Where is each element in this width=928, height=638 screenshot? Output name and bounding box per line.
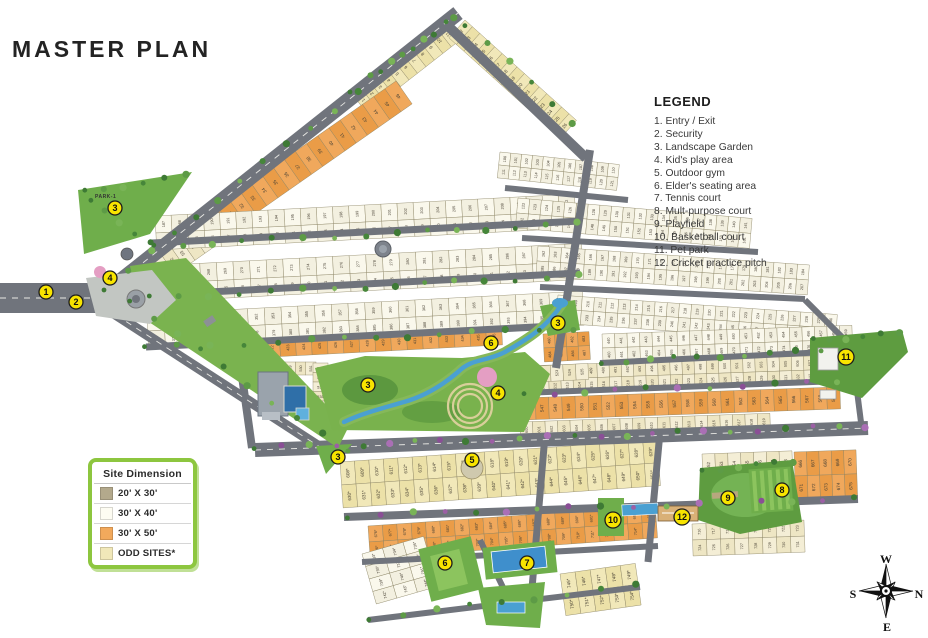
svg-text:379: 379 xyxy=(272,330,276,337)
svg-text:389: 389 xyxy=(440,321,444,328)
svg-text:425: 425 xyxy=(318,343,322,350)
marker-9: 9 xyxy=(721,491,735,505)
svg-text:562: 562 xyxy=(738,397,743,405)
svg-text:499: 499 xyxy=(711,363,715,369)
svg-text:517: 517 xyxy=(614,381,618,387)
svg-text:194: 194 xyxy=(647,273,651,280)
svg-text:393: 393 xyxy=(507,317,511,324)
svg-text:380: 380 xyxy=(289,329,293,336)
legend-item: 11. Pet park xyxy=(654,245,834,258)
svg-text:164: 164 xyxy=(565,252,569,259)
svg-text:442: 442 xyxy=(632,337,636,343)
svg-text:116: 116 xyxy=(556,174,561,180)
svg-text:524: 524 xyxy=(568,369,572,376)
svg-text:621*: 621* xyxy=(532,455,538,465)
svg-text:469: 469 xyxy=(720,348,724,354)
svg-text:274: 274 xyxy=(306,263,310,270)
svg-text:606: 606 xyxy=(600,424,604,430)
svg-text:689*: 689* xyxy=(560,516,565,525)
svg-text:211: 211 xyxy=(598,302,602,308)
svg-text:724: 724 xyxy=(698,544,702,550)
svg-text:714*: 714* xyxy=(633,527,638,536)
svg-text:208: 208 xyxy=(500,203,504,210)
svg-text:169: 169 xyxy=(624,256,628,263)
svg-text:647*: 647* xyxy=(592,474,598,484)
svg-text:622*: 622* xyxy=(547,454,553,464)
svg-text:489: 489 xyxy=(589,367,593,373)
svg-text:472: 472 xyxy=(757,346,761,352)
svg-text:604: 604 xyxy=(575,425,579,431)
svg-text:496: 496 xyxy=(674,364,678,370)
marker-6: 6 xyxy=(438,556,452,570)
svg-text:565: 565 xyxy=(778,396,783,404)
svg-text:680*: 680* xyxy=(431,525,436,534)
svg-text:641*: 641* xyxy=(505,480,511,490)
svg-text:215: 215 xyxy=(647,305,651,312)
svg-text:520: 520 xyxy=(650,379,654,385)
svg-text:206: 206 xyxy=(468,205,472,212)
svg-text:495: 495 xyxy=(662,365,666,371)
svg-text:148: 148 xyxy=(590,224,595,231)
svg-text:120: 120 xyxy=(599,179,604,186)
svg-text:498: 498 xyxy=(699,364,703,370)
svg-text:619*: 619* xyxy=(504,457,510,467)
svg-text:152: 152 xyxy=(637,228,642,235)
master-plan-page: 1234567891011121314151617181920212223242… xyxy=(0,0,928,638)
marker-11: 11 xyxy=(838,349,854,365)
compass-rose: W N E S xyxy=(845,548,927,634)
svg-text:673: 673 xyxy=(823,483,828,491)
legend-item: 12. Cricket practice pitch xyxy=(654,258,834,271)
road xyxy=(448,26,586,158)
svg-text:383: 383 xyxy=(339,326,343,333)
svg-text:706*: 706* xyxy=(519,535,524,544)
svg-text:171: 171 xyxy=(648,258,652,265)
compass-right-label: N xyxy=(915,587,924,601)
svg-text:220: 220 xyxy=(707,309,711,316)
svg-text:193: 193 xyxy=(258,216,262,223)
svg-text:704*: 704* xyxy=(490,537,495,546)
svg-text:460: 460 xyxy=(607,352,611,358)
svg-text:513: 513 xyxy=(565,382,569,388)
svg-text:608: 608 xyxy=(625,423,629,429)
svg-text:691*: 691* xyxy=(589,514,594,523)
svg-text:101: 101 xyxy=(514,157,519,164)
svg-text:486: 486 xyxy=(571,350,575,357)
svg-text:638*: 638* xyxy=(462,483,468,493)
svg-text:3: 3 xyxy=(365,380,370,390)
plot-block-grid-ne-1: 1001011021031041051061071081091101111121… xyxy=(497,152,619,190)
svg-text:614*: 614* xyxy=(431,462,437,472)
svg-text:391: 391 xyxy=(473,319,477,326)
svg-text:163: 163 xyxy=(553,251,557,258)
svg-text:130: 130 xyxy=(615,211,620,218)
svg-text:129: 129 xyxy=(603,210,608,217)
svg-text:609*: 609* xyxy=(359,467,365,477)
svg-text:432: 432 xyxy=(429,337,433,344)
svg-text:236: 236 xyxy=(621,317,625,324)
marker-4: 4 xyxy=(103,271,117,285)
svg-text:553: 553 xyxy=(619,401,624,409)
svg-text:681*: 681* xyxy=(446,524,451,533)
svg-text:682*: 682* xyxy=(460,523,465,532)
svg-text:203: 203 xyxy=(753,280,757,287)
svg-text:191: 191 xyxy=(226,217,230,224)
marker-5: 5 xyxy=(465,453,479,467)
svg-text:630*: 630* xyxy=(347,491,353,501)
svg-text:199: 199 xyxy=(706,277,710,284)
marker-1: 1 xyxy=(39,285,53,299)
svg-text:117: 117 xyxy=(566,176,571,182)
svg-text:192: 192 xyxy=(242,217,246,224)
svg-text:212: 212 xyxy=(610,303,614,310)
svg-text:567: 567 xyxy=(804,395,809,403)
svg-text:213: 213 xyxy=(622,303,626,310)
svg-text:427: 427 xyxy=(350,341,354,348)
svg-text:363: 363 xyxy=(439,304,443,311)
svg-text:624*: 624* xyxy=(576,452,582,462)
legend-item: 6. Elder's seating area xyxy=(654,181,834,194)
svg-text:228: 228 xyxy=(805,316,809,323)
svg-text:196: 196 xyxy=(307,213,311,220)
svg-text:191: 191 xyxy=(611,271,615,278)
svg-text:207: 207 xyxy=(484,204,488,211)
svg-text:217: 217 xyxy=(671,307,675,314)
svg-text:672: 672 xyxy=(811,483,816,491)
svg-text:466: 466 xyxy=(682,349,686,355)
svg-text:644*: 644* xyxy=(548,477,554,487)
svg-text:615: 615 xyxy=(712,420,716,426)
svg-text:547: 547 xyxy=(539,404,544,412)
svg-text:670: 670 xyxy=(847,458,852,466)
svg-text:354: 354 xyxy=(288,312,292,319)
svg-text:196: 196 xyxy=(670,275,674,282)
svg-text:269: 269 xyxy=(223,268,227,275)
svg-text:515: 515 xyxy=(590,381,594,387)
svg-text:727: 727 xyxy=(740,543,744,549)
svg-text:636*: 636* xyxy=(433,485,439,495)
svg-text:423: 423 xyxy=(286,344,290,351)
svg-text:226: 226 xyxy=(780,314,784,321)
svg-text:286: 286 xyxy=(505,253,509,260)
svg-text:620*: 620* xyxy=(518,456,524,466)
svg-text:3: 3 xyxy=(555,318,560,328)
svg-text:224: 224 xyxy=(756,313,760,320)
svg-text:195: 195 xyxy=(658,274,662,281)
page-title: MASTER PLAN xyxy=(12,36,211,63)
svg-text:629*: 629* xyxy=(648,447,654,457)
svg-text:110: 110 xyxy=(611,167,616,173)
svg-text:202: 202 xyxy=(741,280,745,287)
svg-text:241: 241 xyxy=(682,322,686,329)
svg-text:216: 216 xyxy=(659,306,663,313)
svg-text:525: 525 xyxy=(580,368,584,375)
svg-text:11: 11 xyxy=(841,352,851,362)
svg-text:357: 357 xyxy=(338,309,342,316)
svg-text:394: 394 xyxy=(523,316,527,323)
svg-text:200: 200 xyxy=(717,278,721,285)
svg-text:199: 199 xyxy=(355,211,359,218)
svg-text:128: 128 xyxy=(591,209,596,216)
svg-text:203: 203 xyxy=(420,207,424,214)
svg-text:364: 364 xyxy=(455,303,459,310)
svg-text:233: 233 xyxy=(585,315,589,322)
svg-text:461: 461 xyxy=(620,351,624,357)
svg-text:283: 283 xyxy=(456,256,460,263)
svg-text:726: 726 xyxy=(726,544,730,550)
plot-block-south-2b: 666667668669670671672673674675 xyxy=(794,450,858,500)
svg-text:506: 506 xyxy=(796,360,800,366)
svg-text:566: 566 xyxy=(791,395,796,403)
svg-text:190: 190 xyxy=(210,218,214,225)
svg-text:384: 384 xyxy=(356,325,360,332)
svg-text:690*: 690* xyxy=(575,515,580,524)
svg-text:646*: 646* xyxy=(577,475,583,485)
svg-text:447: 447 xyxy=(694,334,698,340)
site-dimension-row: 30' X 40' xyxy=(94,504,191,524)
svg-text:564: 564 xyxy=(765,396,770,404)
svg-text:132: 132 xyxy=(638,213,643,220)
svg-text:193: 193 xyxy=(635,272,639,279)
svg-text:204: 204 xyxy=(765,281,769,288)
svg-text:627*: 627* xyxy=(619,449,625,459)
svg-text:167: 167 xyxy=(600,255,604,262)
svg-text:492: 492 xyxy=(626,366,630,372)
svg-text:123: 123 xyxy=(533,204,538,211)
svg-text:8: 8 xyxy=(779,485,784,495)
svg-text:675: 675 xyxy=(848,482,853,490)
svg-text:686*: 686* xyxy=(517,519,522,528)
svg-text:710*: 710* xyxy=(576,531,581,540)
svg-text:198: 198 xyxy=(694,276,698,283)
svg-text:502: 502 xyxy=(747,362,751,368)
svg-text:114: 114 xyxy=(534,172,539,178)
svg-text:448: 448 xyxy=(707,334,711,340)
marker-3: 3 xyxy=(551,316,565,330)
svg-text:561: 561 xyxy=(725,397,730,405)
svg-text:6: 6 xyxy=(442,558,447,568)
svg-text:443: 443 xyxy=(644,336,648,342)
svg-text:271: 271 xyxy=(256,266,260,273)
svg-text:551: 551 xyxy=(592,402,597,410)
svg-text:210: 210 xyxy=(586,301,590,308)
svg-text:272: 272 xyxy=(273,265,277,272)
svg-text:717: 717 xyxy=(711,528,715,534)
svg-text:449: 449 xyxy=(719,334,723,340)
svg-text:279: 279 xyxy=(389,259,393,266)
svg-text:162: 162 xyxy=(541,251,545,258)
svg-text:633*: 633* xyxy=(390,488,396,498)
svg-text:4: 4 xyxy=(107,273,112,283)
svg-text:440: 440 xyxy=(607,338,611,344)
dimension-color-swatch xyxy=(100,487,113,500)
svg-text:197: 197 xyxy=(323,212,327,219)
svg-text:200: 200 xyxy=(371,210,375,217)
marker-2: 2 xyxy=(69,295,83,309)
svg-text:677*: 677* xyxy=(388,528,393,537)
svg-text:390: 390 xyxy=(456,320,460,327)
svg-text:214: 214 xyxy=(635,304,639,311)
dimension-color-swatch xyxy=(100,507,113,520)
svg-text:430: 430 xyxy=(397,338,401,345)
svg-text:270: 270 xyxy=(240,267,244,274)
svg-text:613*: 613* xyxy=(417,463,423,473)
svg-text:201: 201 xyxy=(387,209,391,216)
svg-text:201: 201 xyxy=(729,279,733,286)
svg-text:113: 113 xyxy=(523,171,528,177)
plot-block-strip-top-right: 121314151617181920212223242526 xyxy=(449,20,577,138)
svg-text:367: 367 xyxy=(506,300,510,307)
svg-text:168: 168 xyxy=(612,256,616,263)
marker-6: 6 xyxy=(484,336,498,350)
svg-text:197: 197 xyxy=(682,275,686,282)
svg-text:382: 382 xyxy=(322,327,326,334)
park-1-label: PARK-1 xyxy=(95,194,116,200)
svg-text:431: 431 xyxy=(413,338,417,345)
svg-text:559: 559 xyxy=(698,398,703,406)
svg-text:106: 106 xyxy=(568,163,573,170)
svg-text:623*: 623* xyxy=(561,453,567,463)
svg-text:3: 3 xyxy=(112,203,117,213)
svg-text:709*: 709* xyxy=(562,532,567,541)
svg-text:359: 359 xyxy=(372,307,376,314)
svg-text:170: 170 xyxy=(636,257,640,264)
svg-text:189: 189 xyxy=(588,269,592,276)
svg-text:725: 725 xyxy=(712,544,716,550)
compass-star-icon xyxy=(859,564,913,618)
svg-text:683*: 683* xyxy=(474,522,479,531)
svg-text:104: 104 xyxy=(546,160,551,167)
svg-text:462: 462 xyxy=(632,351,636,357)
svg-text:268: 268 xyxy=(207,269,211,276)
svg-text:674: 674 xyxy=(836,482,841,490)
svg-text:648*: 648* xyxy=(606,473,612,483)
svg-text:242: 242 xyxy=(694,322,698,329)
svg-text:729: 729 xyxy=(768,542,772,548)
svg-text:281: 281 xyxy=(422,257,426,264)
legend-item: 4. Kid's play area xyxy=(654,155,834,168)
svg-text:611: 611 xyxy=(662,422,666,428)
svg-text:428: 428 xyxy=(365,340,369,347)
svg-text:450: 450 xyxy=(732,333,736,339)
svg-text:221: 221 xyxy=(720,310,724,317)
svg-text:603: 603 xyxy=(562,425,566,431)
svg-text:552: 552 xyxy=(606,402,611,410)
svg-text:284: 284 xyxy=(472,255,476,262)
svg-text:273: 273 xyxy=(290,264,294,271)
svg-text:554: 554 xyxy=(632,401,637,409)
svg-text:239: 239 xyxy=(658,320,662,327)
svg-text:278: 278 xyxy=(373,260,377,267)
svg-text:205: 205 xyxy=(776,282,780,289)
svg-text:524: 524 xyxy=(699,378,703,384)
svg-text:107: 107 xyxy=(579,164,584,171)
svg-text:612*: 612* xyxy=(403,464,409,474)
svg-text:125: 125 xyxy=(556,206,561,213)
svg-text:381: 381 xyxy=(306,328,310,335)
svg-text:635*: 635* xyxy=(419,486,425,496)
svg-text:392: 392 xyxy=(490,318,494,325)
svg-text:610: 610 xyxy=(650,422,654,428)
svg-text:556: 556 xyxy=(659,400,664,408)
svg-text:705*: 705* xyxy=(504,536,509,545)
svg-text:708*: 708* xyxy=(547,533,552,542)
svg-text:632*: 632* xyxy=(375,489,381,499)
svg-text:356: 356 xyxy=(321,310,325,317)
svg-text:667: 667 xyxy=(810,459,815,467)
svg-text:192: 192 xyxy=(623,271,627,278)
svg-text:122: 122 xyxy=(521,203,526,210)
svg-text:5: 5 xyxy=(469,455,474,465)
marker-7: 7 xyxy=(520,556,534,570)
svg-text:618*: 618* xyxy=(489,458,495,468)
svg-text:491: 491 xyxy=(614,367,618,373)
marker-8: 8 xyxy=(775,483,789,497)
svg-text:642*: 642* xyxy=(520,479,526,489)
svg-text:666: 666 xyxy=(798,459,803,467)
svg-text:276: 276 xyxy=(339,262,343,269)
svg-text:3: 3 xyxy=(335,452,340,462)
legend-item: 7. Tennis court xyxy=(654,193,834,206)
svg-text:521: 521 xyxy=(663,379,667,385)
svg-text:218: 218 xyxy=(683,308,687,315)
svg-text:445: 445 xyxy=(669,335,673,341)
svg-text:369: 369 xyxy=(539,299,543,306)
svg-text:668: 668 xyxy=(823,459,828,467)
svg-text:640*: 640* xyxy=(491,481,497,491)
svg-text:497: 497 xyxy=(686,364,690,370)
dimension-color-swatch xyxy=(100,527,113,540)
legend-item: 5. Outdoor gym xyxy=(654,168,834,181)
svg-text:514: 514 xyxy=(578,382,582,388)
svg-text:238: 238 xyxy=(646,319,650,326)
svg-text:149: 149 xyxy=(602,225,607,232)
legend-title: LEGEND xyxy=(654,94,834,109)
svg-text:362: 362 xyxy=(422,305,426,312)
svg-text:618: 618 xyxy=(750,419,754,425)
svg-text:195: 195 xyxy=(291,214,295,221)
svg-text:204: 204 xyxy=(436,206,440,213)
svg-text:523: 523 xyxy=(555,370,559,377)
svg-text:678*: 678* xyxy=(402,527,407,536)
svg-text:121: 121 xyxy=(610,180,615,187)
svg-text:494: 494 xyxy=(650,365,654,371)
svg-text:516: 516 xyxy=(602,381,606,387)
svg-text:185: 185 xyxy=(540,266,544,273)
svg-text:352: 352 xyxy=(254,313,258,320)
svg-text:100: 100 xyxy=(503,156,508,163)
svg-text:679*: 679* xyxy=(417,526,422,535)
legend-panel: LEGEND 1. Entry / Exit2. Security3. Land… xyxy=(654,94,834,271)
svg-text:611*: 611* xyxy=(388,465,394,475)
svg-text:609: 609 xyxy=(637,423,641,429)
svg-text:454: 454 xyxy=(782,331,786,337)
svg-text:519: 519 xyxy=(638,380,642,386)
svg-text:237: 237 xyxy=(634,318,638,325)
legend-item: 2. Security xyxy=(654,129,834,142)
svg-text:102: 102 xyxy=(524,158,529,165)
svg-text:452: 452 xyxy=(757,332,761,338)
svg-text:617: 617 xyxy=(737,419,741,425)
svg-text:525: 525 xyxy=(711,377,715,383)
svg-text:387: 387 xyxy=(406,323,410,330)
svg-text:205: 205 xyxy=(452,206,456,213)
svg-text:649*: 649* xyxy=(621,472,627,482)
svg-text:504: 504 xyxy=(771,361,775,367)
svg-text:650*: 650* xyxy=(635,471,641,481)
svg-text:243: 243 xyxy=(706,323,710,330)
svg-text:482: 482 xyxy=(570,336,574,343)
